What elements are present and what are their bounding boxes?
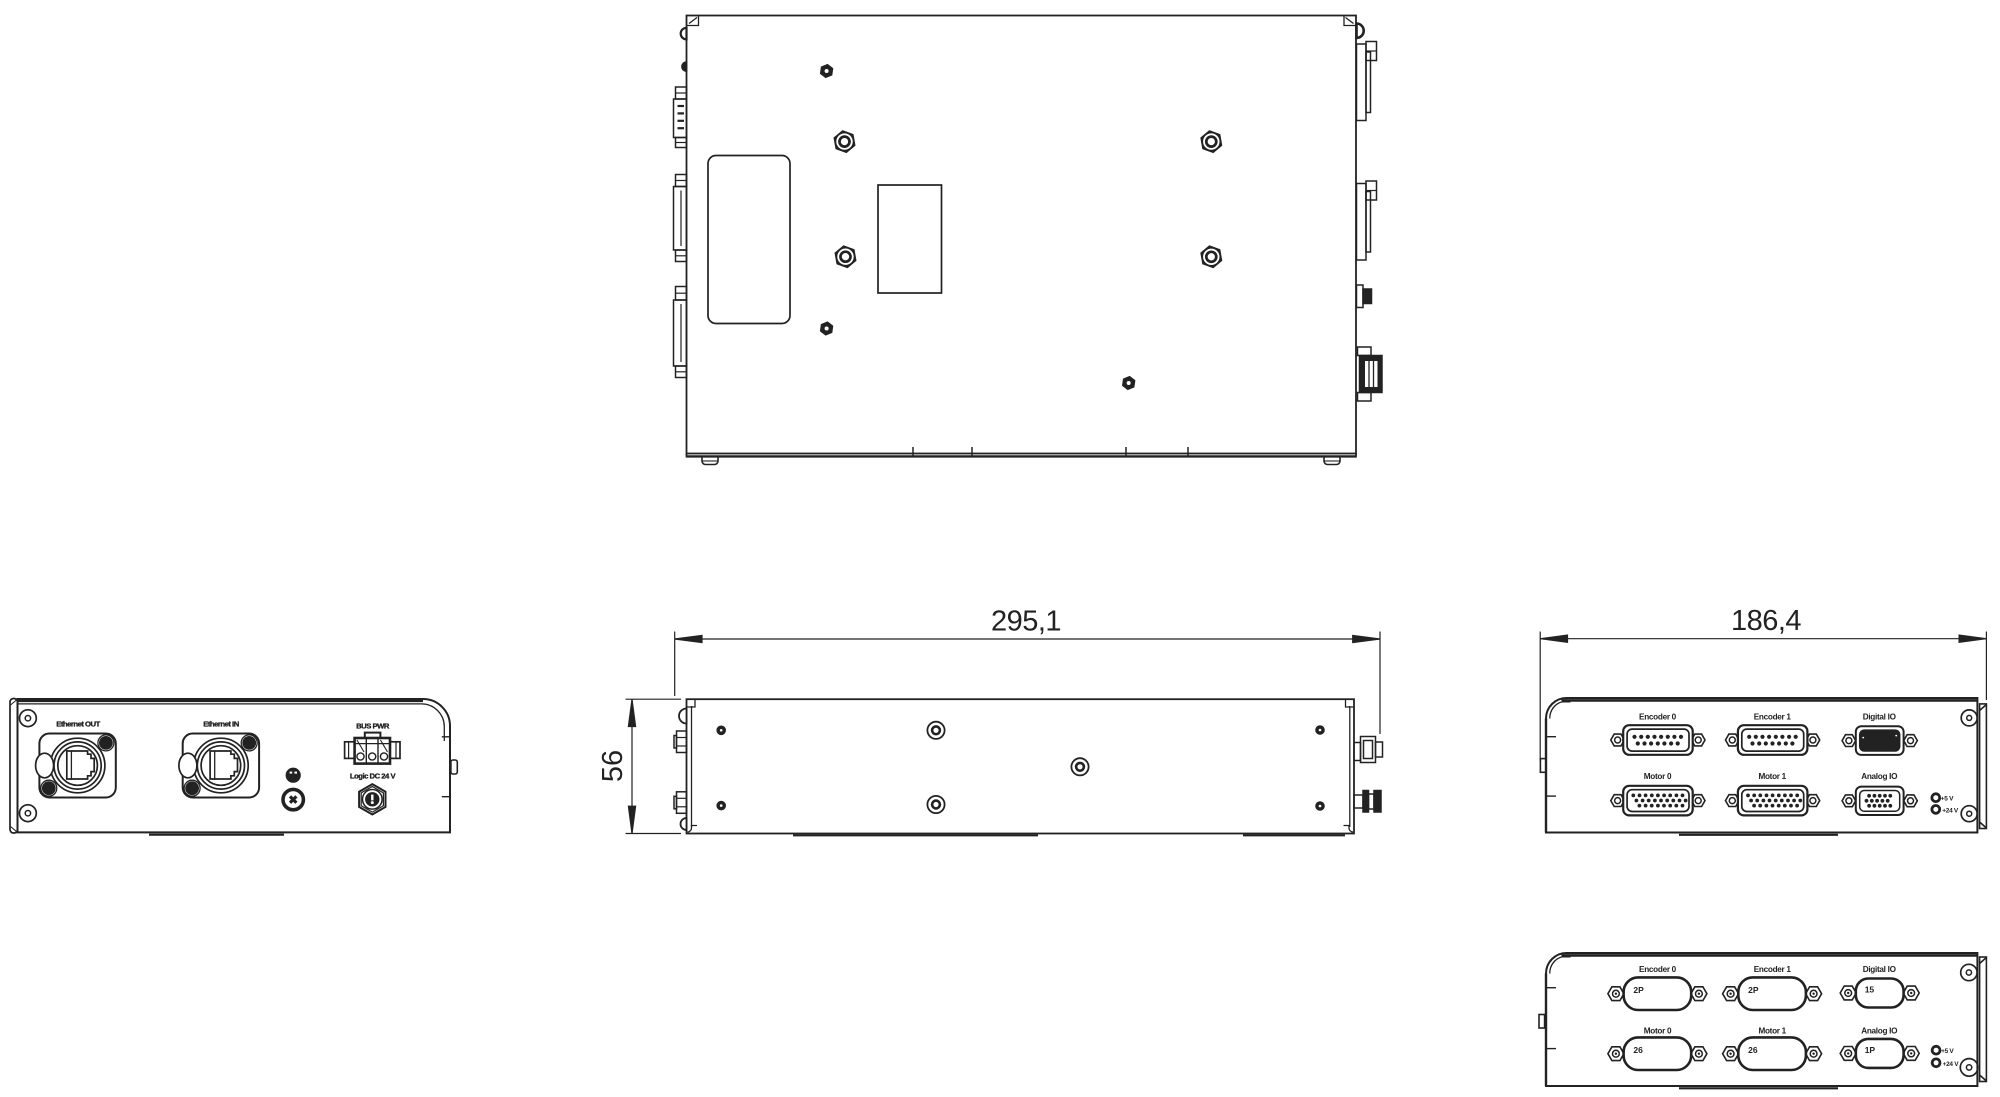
svg-text:1P: 1P — [1865, 1045, 1876, 1055]
svg-text:Digital IO: Digital IO — [1863, 713, 1897, 722]
svg-text:Logic DC 24 V: Logic DC 24 V — [350, 772, 397, 781]
svg-text:Encoder 1: Encoder 1 — [1754, 713, 1792, 722]
svg-text:Encoder 1: Encoder 1 — [1754, 965, 1792, 974]
svg-text:56: 56 — [597, 750, 629, 782]
svg-text:+24 V: +24 V — [1943, 1061, 1960, 1068]
svg-text:295,1: 295,1 — [991, 606, 1061, 638]
svg-text:BUS PWR: BUS PWR — [356, 721, 390, 730]
svg-text:Analog IO: Analog IO — [1861, 1027, 1898, 1036]
svg-text:+5 V: +5 V — [1941, 1048, 1954, 1055]
svg-text:+5 V: +5 V — [1941, 796, 1954, 803]
svg-text:2P: 2P — [1748, 985, 1759, 995]
svg-text:26: 26 — [1633, 1045, 1643, 1055]
svg-text:186,4: 186,4 — [1731, 605, 1801, 637]
svg-text:Encoder 0: Encoder 0 — [1639, 965, 1677, 974]
svg-text:Digital IO: Digital IO — [1863, 965, 1897, 974]
svg-text:Ethernet OUT: Ethernet OUT — [56, 720, 100, 729]
svg-text:2P: 2P — [1633, 985, 1644, 995]
svg-text:Motor 1: Motor 1 — [1758, 772, 1786, 781]
svg-text:Ethernet IN: Ethernet IN — [203, 720, 239, 729]
svg-text:15: 15 — [1865, 985, 1875, 995]
svg-text:26: 26 — [1748, 1045, 1758, 1055]
svg-text:Analog IO: Analog IO — [1861, 772, 1898, 781]
svg-text:Motor 0: Motor 0 — [1644, 1027, 1672, 1036]
svg-text:+24 V: +24 V — [1942, 807, 1959, 814]
svg-text:Encoder 0: Encoder 0 — [1639, 713, 1677, 722]
svg-text:Motor 1: Motor 1 — [1758, 1027, 1786, 1036]
svg-text:Motor 0: Motor 0 — [1644, 772, 1672, 781]
